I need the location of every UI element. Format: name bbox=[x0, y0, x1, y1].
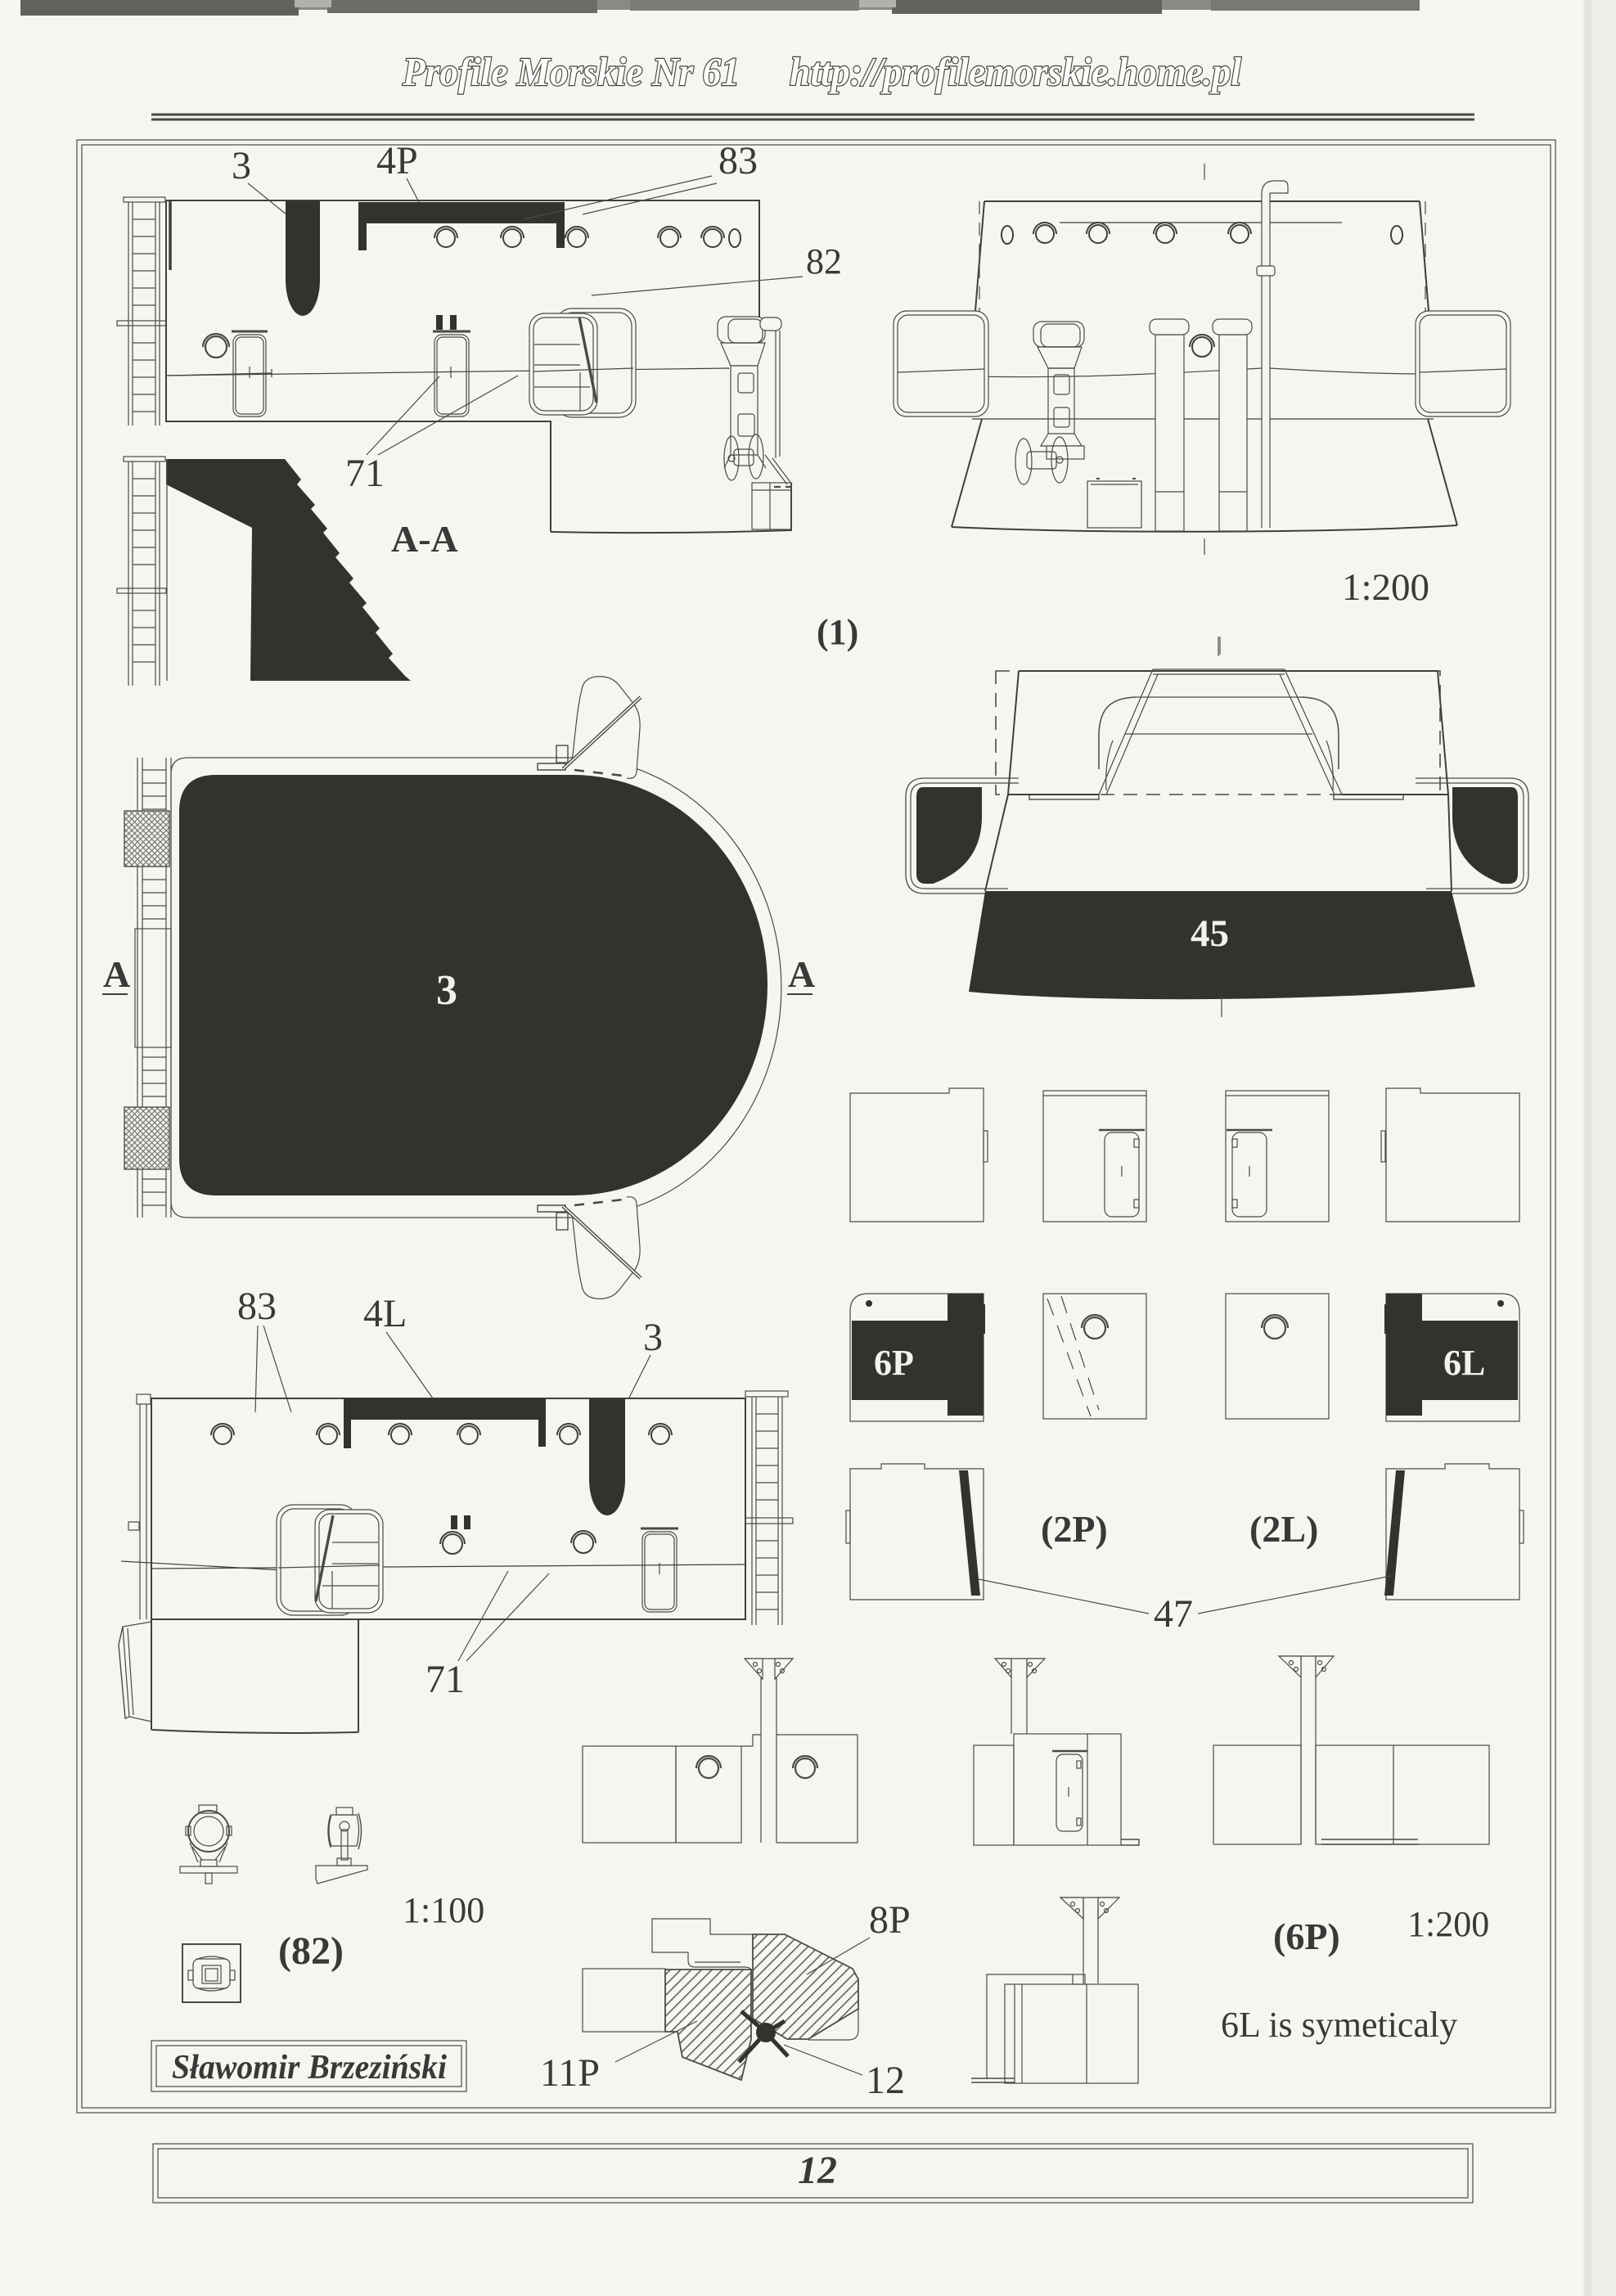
svg-text:83: 83 bbox=[718, 139, 758, 182]
svg-text:83: 83 bbox=[237, 1285, 277, 1328]
svg-text:http://profilemorskie.home.pl: http://profilemorskie.home.pl bbox=[790, 49, 1241, 94]
svg-text:3: 3 bbox=[232, 144, 251, 187]
svg-text:4P: 4P bbox=[376, 139, 418, 182]
svg-text:6L is symeticaly: 6L is symeticaly bbox=[1221, 2005, 1457, 2045]
svg-text:(82): (82) bbox=[278, 1929, 344, 1973]
svg-text:6L: 6L bbox=[1443, 1343, 1485, 1383]
svg-text:12: 12 bbox=[866, 2059, 905, 2102]
svg-text:(1): (1) bbox=[817, 612, 858, 652]
svg-text:(6P): (6P) bbox=[1273, 1916, 1340, 1957]
svg-text:1:200: 1:200 bbox=[1342, 566, 1429, 609]
svg-text:Sławomir Brzeziński: Sławomir Brzeziński bbox=[172, 2049, 447, 2087]
svg-text:(2L): (2L) bbox=[1249, 1508, 1318, 1550]
svg-text:A: A bbox=[788, 953, 815, 995]
svg-text:(2P): (2P) bbox=[1041, 1508, 1108, 1550]
svg-text:8P: 8P bbox=[869, 1898, 911, 1942]
svg-text:A: A bbox=[103, 953, 130, 995]
svg-text:3: 3 bbox=[436, 967, 457, 1014]
svg-text:1:100: 1:100 bbox=[403, 1890, 484, 1930]
svg-text:47: 47 bbox=[1154, 1592, 1193, 1636]
svg-text:71: 71 bbox=[425, 1658, 465, 1701]
svg-text:Profile Morskie Nr 61: Profile Morskie Nr 61 bbox=[402, 49, 740, 94]
svg-text:71: 71 bbox=[345, 452, 385, 495]
svg-text:3: 3 bbox=[643, 1316, 663, 1359]
svg-text:6P: 6P bbox=[874, 1343, 914, 1383]
svg-text:82: 82 bbox=[806, 241, 842, 281]
svg-text:45: 45 bbox=[1191, 912, 1229, 955]
svg-text:A-A: A-A bbox=[391, 518, 458, 560]
svg-text:4L: 4L bbox=[363, 1292, 407, 1335]
svg-text:12: 12 bbox=[798, 2149, 837, 2192]
svg-text:1:200: 1:200 bbox=[1407, 1904, 1489, 1944]
svg-text:11P: 11P bbox=[540, 2051, 600, 2095]
